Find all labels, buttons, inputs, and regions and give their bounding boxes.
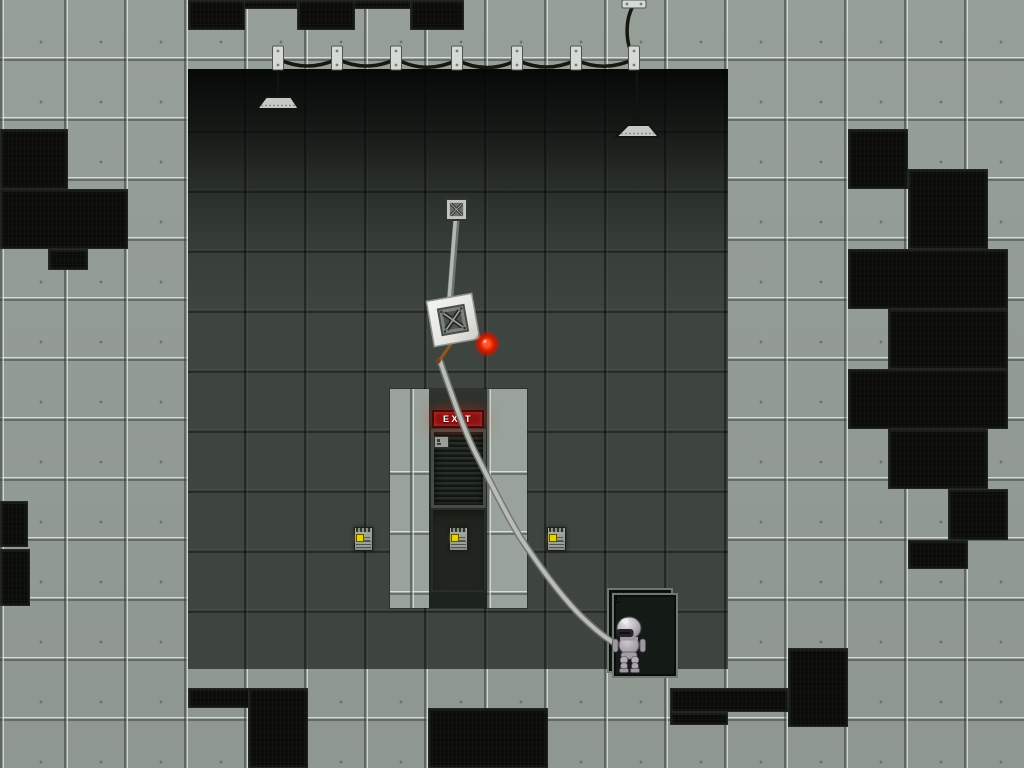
black-tile xyxy=(848,129,908,189)
black-tile xyxy=(297,0,355,30)
black-tile xyxy=(788,648,848,727)
black-tile xyxy=(410,0,464,30)
black-tile xyxy=(0,189,128,249)
black-tile xyxy=(48,249,88,270)
black-tile xyxy=(908,169,988,249)
black-tile xyxy=(0,129,68,189)
black-tile xyxy=(670,688,788,712)
black-tile xyxy=(0,501,28,547)
black-tile xyxy=(188,0,464,9)
exit-door-lower-panel xyxy=(431,508,486,592)
black-tile xyxy=(248,688,308,768)
exit-sign: EXIT xyxy=(432,410,484,428)
black-tile xyxy=(848,249,1008,309)
game-scene[interactable]: EXIT xyxy=(0,0,1024,768)
black-tile xyxy=(0,549,30,606)
black-tile xyxy=(948,489,1008,540)
black-tile xyxy=(848,369,1008,429)
cable-brackets xyxy=(273,0,647,70)
door-plaque xyxy=(612,593,678,678)
ceiling-cable xyxy=(278,6,634,68)
black-tile xyxy=(670,712,728,725)
black-tile xyxy=(908,540,968,569)
black-tile xyxy=(188,688,308,708)
black-tile xyxy=(888,309,1008,369)
black-tile xyxy=(888,429,988,489)
black-tile xyxy=(428,708,548,768)
black-tile xyxy=(188,0,245,30)
door-plaque xyxy=(434,436,449,448)
